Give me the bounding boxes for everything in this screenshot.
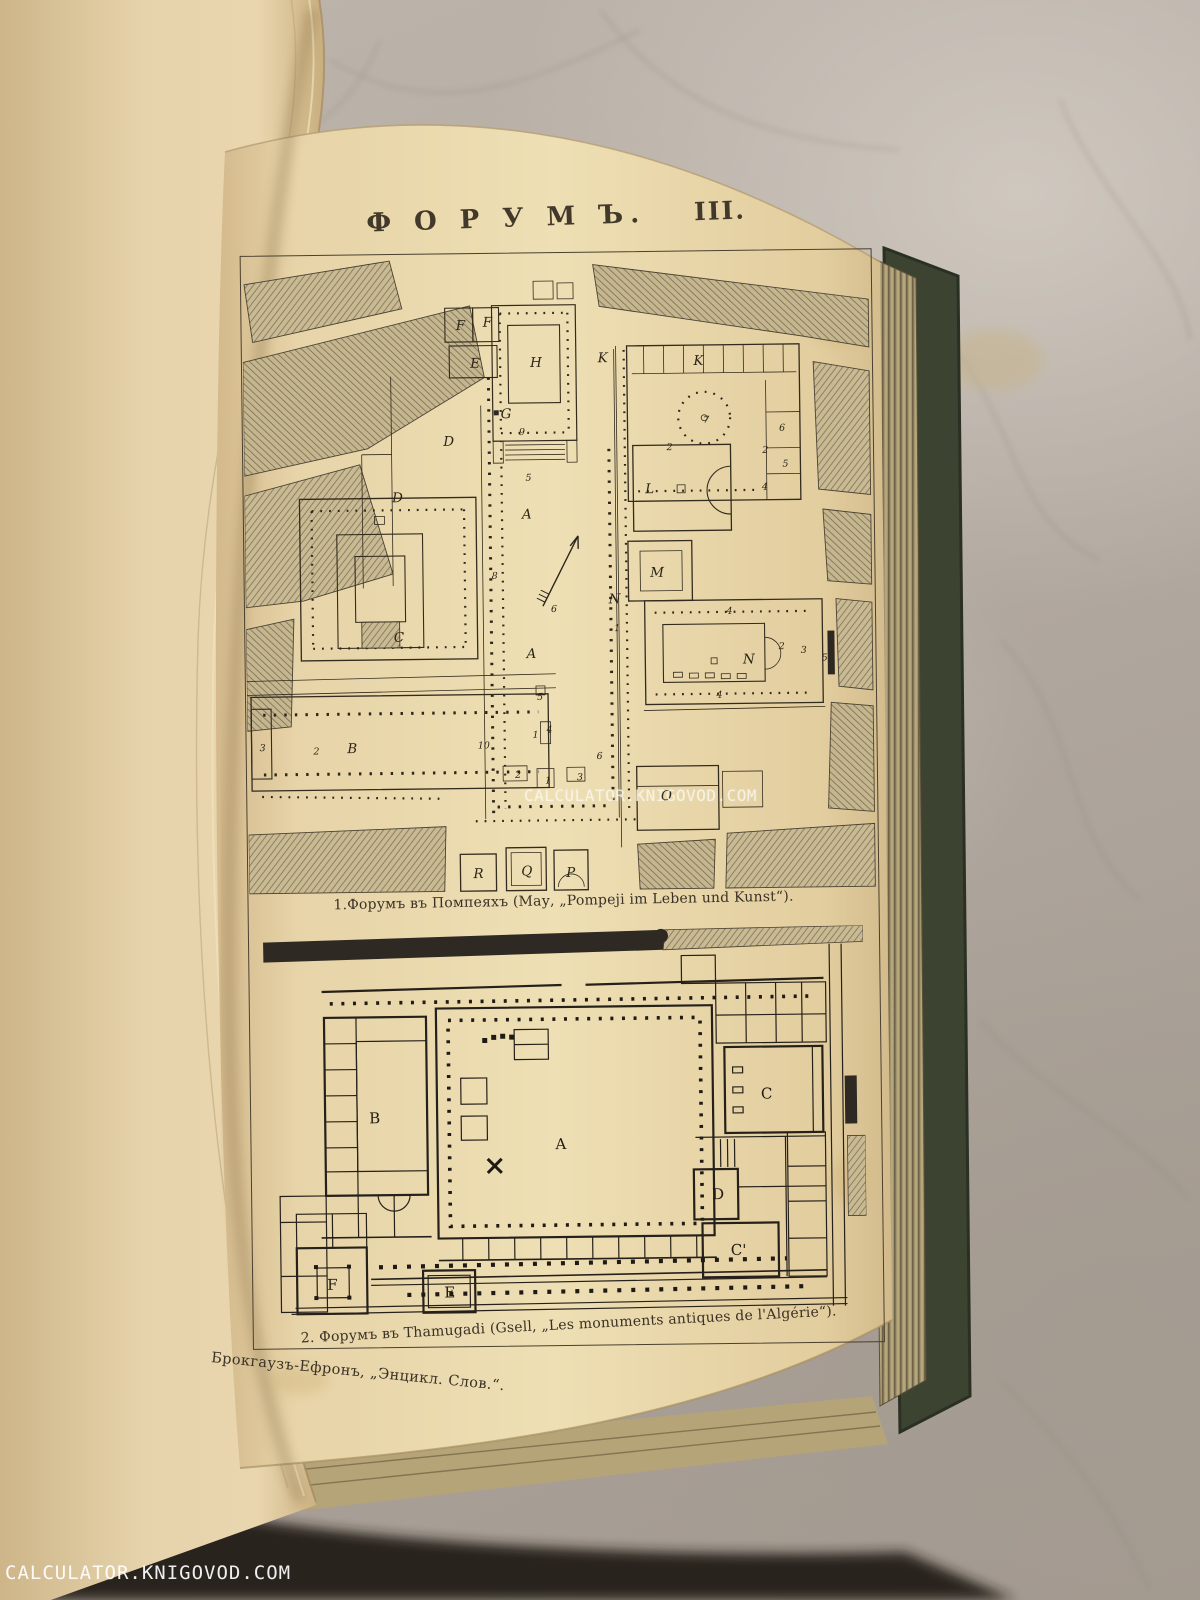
svg-text:L: L	[644, 482, 654, 497]
marble-stain	[947, 330, 1043, 390]
svg-text:8: 8	[492, 571, 498, 582]
svg-text:A: A	[525, 647, 537, 662]
svg-text:6: 6	[597, 751, 603, 762]
svg-text:7: 7	[703, 415, 709, 426]
svg-text:H: H	[529, 356, 542, 371]
thamugadi-plaza	[436, 1005, 715, 1238]
svg-text:2: 2	[514, 770, 521, 781]
svg-text:1: 1	[545, 775, 551, 786]
svg-text:4: 4	[545, 725, 552, 736]
svg-text:2: 2	[666, 442, 673, 453]
svg-text:E: E	[469, 357, 480, 372]
encyclopedia-plate: Ф О Р У М Ъ. III.	[239, 192, 887, 1360]
svg-text:B: B	[369, 1109, 380, 1127]
svg-text:F: F	[455, 319, 466, 334]
book-photo-scene: Ф О Р У М Ъ. III.	[0, 0, 1200, 1600]
thamugadi-right-street	[829, 943, 867, 1305]
watermark-center: CALCULATOR.KNIGOVOD.COM	[524, 786, 757, 805]
svg-text:D: D	[712, 1185, 724, 1203]
svg-text:9: 9	[519, 427, 525, 438]
temple-of-jupiter	[491, 281, 577, 463]
svg-text:3: 3	[577, 772, 583, 783]
svg-text:6: 6	[551, 604, 557, 615]
thamugadi-court-F	[280, 1195, 367, 1314]
svg-text:5: 5	[525, 473, 531, 484]
svg-text:2: 2	[761, 445, 768, 456]
svg-text:D: D	[391, 491, 403, 506]
svg-text:F: F	[327, 1276, 338, 1294]
svg-text:D: D	[442, 435, 454, 450]
thamugadi-north-portico	[322, 978, 824, 1004]
svg-text:K: K	[692, 354, 704, 369]
north-arrow	[536, 536, 579, 606]
svg-text:M: M	[649, 566, 665, 581]
fig2-letters: BACDC'FE	[325, 1084, 775, 1302]
svg-text:A: A	[554, 1135, 566, 1153]
svg-text:N: N	[608, 592, 622, 607]
svg-text:E: E	[444, 1283, 455, 1301]
macellum	[627, 344, 801, 502]
svg-text:4: 4	[715, 690, 722, 701]
svg-text:B: B	[346, 742, 357, 757]
svg-text:2: 2	[778, 641, 785, 652]
plate-title-numeral: III.	[694, 195, 747, 226]
thamugadi-forum-plan: BACDC'FE	[263, 925, 868, 1317]
svg-text:2: 2	[312, 746, 319, 757]
svg-text:C: C	[394, 631, 405, 646]
svg-text:G: G	[501, 407, 512, 422]
svg-text:1: 1	[614, 623, 620, 634]
svg-text:5: 5	[537, 692, 543, 703]
svg-text:C: C	[761, 1084, 773, 1102]
svg-text:5: 5	[782, 459, 788, 470]
svg-text:F: F	[482, 316, 493, 331]
svg-text:1: 1	[533, 730, 539, 741]
svg-text:K: K	[597, 351, 609, 366]
svg-text:P: P	[565, 866, 576, 881]
svg-text:4: 4	[761, 482, 768, 493]
svg-text:C': C'	[731, 1241, 747, 1259]
svg-text:3: 3	[801, 645, 807, 656]
plate-title-text: Ф О Р У М Ъ.	[366, 199, 647, 239]
svg-text:Q: Q	[521, 864, 532, 879]
svg-text:R: R	[472, 867, 483, 882]
watermark-corner: CALCULATOR.KNIGOVOD.COM	[5, 1562, 291, 1584]
svg-text:6: 6	[779, 423, 785, 434]
thamugadi-bottom-portico	[291, 1258, 848, 1315]
plate-title: Ф О Р У М Ъ. III.	[239, 191, 874, 243]
svg-text:N: N	[742, 652, 756, 667]
svg-text:10: 10	[478, 740, 490, 751]
svg-text:A: A	[520, 508, 532, 523]
svg-text:4: 4	[725, 606, 732, 617]
svg-text:3: 3	[260, 743, 266, 754]
svg-text:5: 5	[822, 652, 828, 663]
